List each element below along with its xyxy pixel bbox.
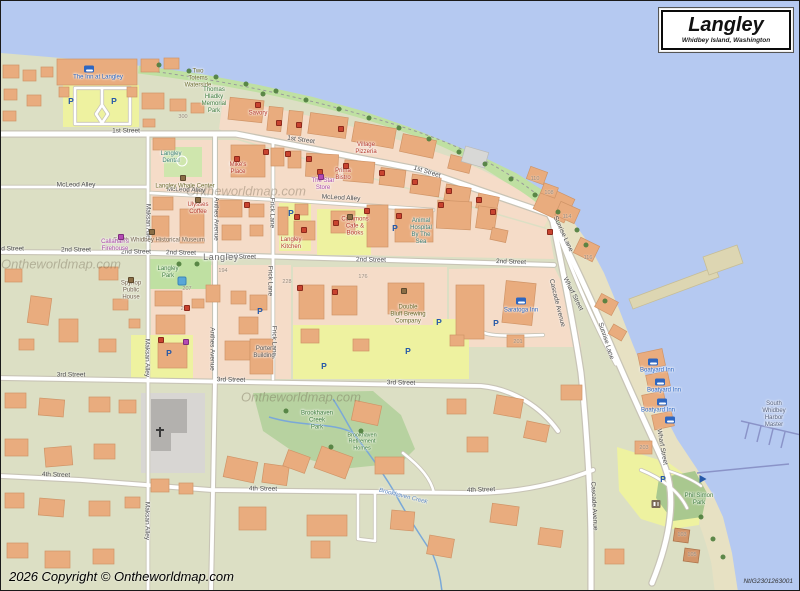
street-label: Cascade Avenue [548,278,567,327]
dot-red-icon [343,163,349,169]
parking-icon: P [166,349,172,357]
poi-label: Langley Park [157,266,178,280]
street-label: Frick Lane [269,198,276,228]
street-label: Wharf Street [655,428,668,465]
poi-label: Mike's Place [230,162,247,176]
tree-icon [304,98,309,103]
map-code: NtIG2301263001 [743,578,793,585]
street-label: 2nd Street [226,253,256,261]
poi-label: Prima Bistro [335,168,351,182]
street-label: 4th Street [249,485,277,492]
dot-red-icon [255,102,261,108]
church-cross-icon [156,427,164,437]
tree-icon [483,162,488,167]
bed-icon [84,66,94,73]
watermark-text: Ontheworldmap.com [1,257,121,272]
street-label: 3rd Street [217,376,246,383]
poi-label: Animal Hospital By The Sea [410,218,432,246]
street-label: Maksan Alley [145,204,152,242]
house-number: 114 [563,214,572,220]
street-label: Cascade Avenue [589,481,599,530]
street-label: Sunrise Lane [552,215,575,253]
dot-red-icon [296,122,302,128]
street-label: 2nd Street [0,246,24,253]
street-label: 2nd Street [121,249,151,256]
dot-red-icon [332,289,338,295]
dot-red-icon [184,305,190,311]
poi-label: Brookhaven Retirement Homes [347,433,376,452]
poi-label: Thomas Hladky Memorial Park [202,87,227,115]
poi-label: Boatyard Inn [640,368,674,375]
street-label: Maksan Alley [144,502,151,540]
dot-red-icon [438,202,444,208]
bed-icon [665,417,675,424]
tree-icon [157,63,162,68]
street-label: 3rd Street [387,379,416,386]
parking-icon: P [288,209,294,217]
dot-red-icon [301,227,307,233]
map-title: Langley [665,15,787,35]
poi-label: Village Pizzeria [355,142,376,156]
poi-label: The Inn at Langley [73,75,123,82]
street-label: 1st Street [112,128,140,135]
tree-icon [556,210,561,215]
dot-red-icon [294,214,300,220]
street-label: Anthes Avenue [209,327,216,371]
poi-label: South Whidbey Harbor Master [762,401,785,429]
copyright-text: 2026 Copyright © Ontheworldmap.com [9,569,234,584]
dot-red-icon [234,156,240,162]
label-layer: 1st Street1st Street1st StreetMcLeod All… [1,1,799,590]
langley-map: 1st Street1st Street1st StreetMcLeod All… [0,0,800,591]
poi-label: South Whidbey Historical Museum [113,238,205,245]
street-label: 3rd Street [57,372,86,379]
street-label: Anthes Avenue [213,197,220,241]
poi-label: Brookhaven Creek Park [301,411,333,432]
tree-icon [699,515,704,520]
dot-magenta-icon [318,174,324,180]
poi-label: Langley [203,252,239,262]
dot-red-icon [396,213,402,219]
dot-brown-icon [347,214,353,220]
dot-red-icon [446,188,452,194]
poi-label: Callahan's Firehouse [101,239,129,253]
dot-brown-icon [401,288,407,294]
poi-label: Brookhaven Creek [378,488,428,507]
poi-label: Spyhop Public House [121,281,141,302]
tree-icon [584,243,589,248]
street-label: 4th Street [467,486,495,494]
parking-icon: P [436,318,442,326]
tree-icon [284,409,289,414]
watermark-text: Ontheworldmap.com [241,390,361,405]
street-label: Maksan Alley [144,339,151,377]
map-subtitle: Whidbey Island, Washington [665,37,787,44]
street-label: 2nd Street [356,256,386,264]
tree-icon [244,82,249,87]
tree-icon [533,193,538,198]
tree-icon [274,89,279,94]
tree-icon [575,228,580,233]
tree-icon [427,137,432,142]
tree-icon [457,150,462,155]
dot-red-icon [306,156,312,162]
dot-red-icon [333,220,339,226]
dot-brown-icon [149,229,155,235]
tree-icon [721,555,726,560]
tree-icon [711,537,716,542]
poi-label: Boatyard Inn [647,388,681,395]
dot-brown-icon [128,277,134,283]
street-label: Frick Lane [271,326,278,356]
parking-icon: P [493,319,499,327]
dot-red-icon [244,202,250,208]
parking-icon: P [257,307,263,315]
poi-label: Phil Simon Park [685,493,714,507]
dot-red-icon [276,120,282,126]
poi-label: Boatyard Inn [641,408,675,415]
dot-red-icon [338,126,344,132]
map-title-inner: Langley Whidbey Island, Washington [661,10,791,50]
poi-label: Ulysses Coffee [187,202,208,216]
house-number: 108 [544,190,553,196]
house-number: 207 [182,286,191,292]
parking-icon: P [405,347,411,355]
tree-icon [337,107,342,112]
poi-label: Double Bluff Brewing Company [390,305,425,326]
dot-magenta-icon [118,234,124,240]
dot-red-icon [412,179,418,185]
bed-icon [648,359,658,366]
tree-icon [367,116,372,121]
dot-red-icon [364,208,370,214]
house-number: 176 [358,274,367,280]
poi-label: The Star Store [311,178,334,192]
street-label: 2nd Street [166,249,196,257]
tree-icon [359,429,364,434]
house-number: 105 [687,552,696,558]
bed-icon [657,399,667,406]
bed-icon [655,379,665,386]
poi-label: Commons Cafe & Books [341,217,368,238]
house-number: 194 [218,268,227,274]
house-number: 110 [531,176,540,182]
dot-red-icon [476,197,482,203]
dot-red-icon [158,337,164,343]
tree-icon [261,92,266,97]
house-number: 228 [282,279,291,285]
house-number: 203 [639,445,648,451]
street-label: Wharf Street [562,276,585,312]
dot-red-icon [285,151,291,157]
street-label: Sunrise Lane [597,322,615,361]
street-label: 2nd Street [496,258,526,266]
tree-icon [187,69,192,74]
map-title-box: Langley Whidbey Island, Washington [658,7,794,53]
parking-icon: P [68,97,74,105]
fountain-icon [177,156,188,167]
tree-icon [329,445,334,450]
playground-icon [178,277,187,286]
house-number: 103 [677,532,686,538]
poi-label: Savory [249,111,268,118]
tree-icon [397,126,402,131]
parking-icon: P [321,362,327,370]
dot-red-icon [379,170,385,176]
street-label: 1st Street [287,135,316,146]
street-label: 1st Street [413,165,442,180]
tree-icon [509,177,514,182]
dot-red-icon [263,149,269,155]
street-label: McLeod Alley [57,182,96,189]
dot-red-icon [297,285,303,291]
poi-label: Porter Building [253,346,274,360]
street-label: 4th Street [42,471,70,479]
house-number: 116 [584,255,593,261]
poi-label: Langley Kitchen [280,237,301,251]
dot-brown-icon [180,175,186,181]
bed-icon [516,298,526,305]
boat-launch-icon [700,475,707,483]
house-number: 201 [513,339,522,345]
parking-icon: P [392,224,398,232]
poi-label: Saratoga Inn [504,308,538,315]
street-label: McLeod Alley [322,193,361,202]
tree-icon [195,262,200,267]
tree-icon [603,299,608,304]
restroom-icon [652,500,661,508]
tree-icon [214,75,219,80]
dot-magenta-icon [183,339,189,345]
tree-icon [177,262,182,267]
parking-icon: P [660,475,666,483]
house-number: 300 [178,114,187,120]
dot-red-icon [490,209,496,215]
dot-red-icon [547,229,553,235]
watermark-text: Ontheworldmap.com [186,184,306,199]
street-label: 2nd Street [61,247,91,254]
parking-icon: P [111,97,117,105]
street-label: Frick Lane [267,266,274,296]
